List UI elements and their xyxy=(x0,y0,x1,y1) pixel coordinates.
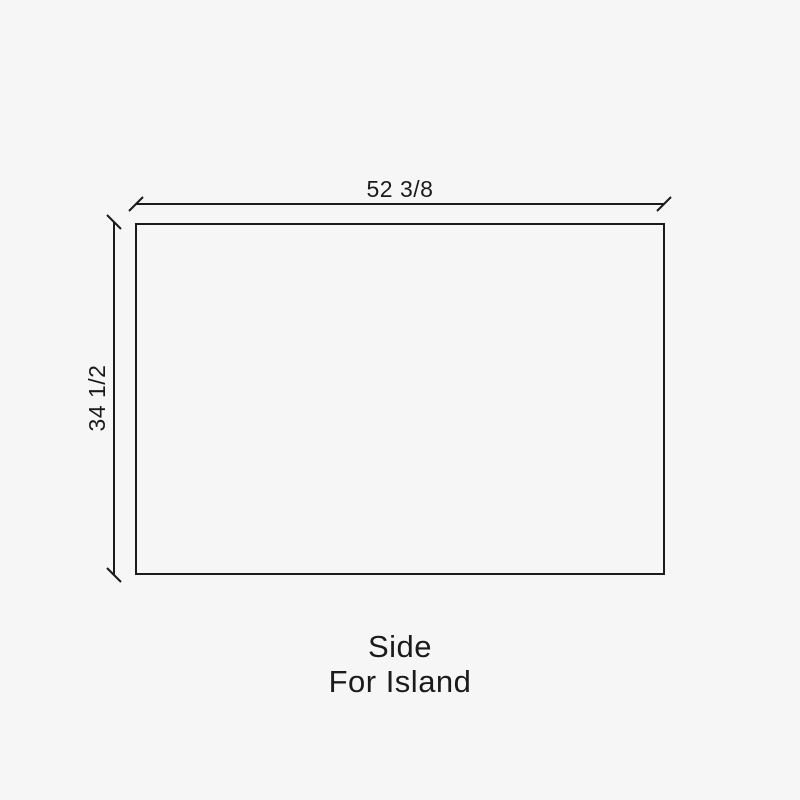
height-dimension: 34 1/2 xyxy=(84,215,121,582)
dimension-drawing: 52 3/8 34 1/2 Side For Island xyxy=(0,0,800,800)
caption: Side For Island xyxy=(329,629,472,699)
height-dimension-label: 34 1/2 xyxy=(84,365,110,432)
panel-outline-rectangle xyxy=(136,224,664,574)
caption-line1: Side xyxy=(368,629,432,664)
width-dimension: 52 3/8 xyxy=(129,176,671,211)
caption-line2: For Island xyxy=(329,664,472,699)
drawing-canvas: 52 3/8 34 1/2 Side For Island xyxy=(0,0,800,800)
width-dimension-label: 52 3/8 xyxy=(367,176,434,202)
